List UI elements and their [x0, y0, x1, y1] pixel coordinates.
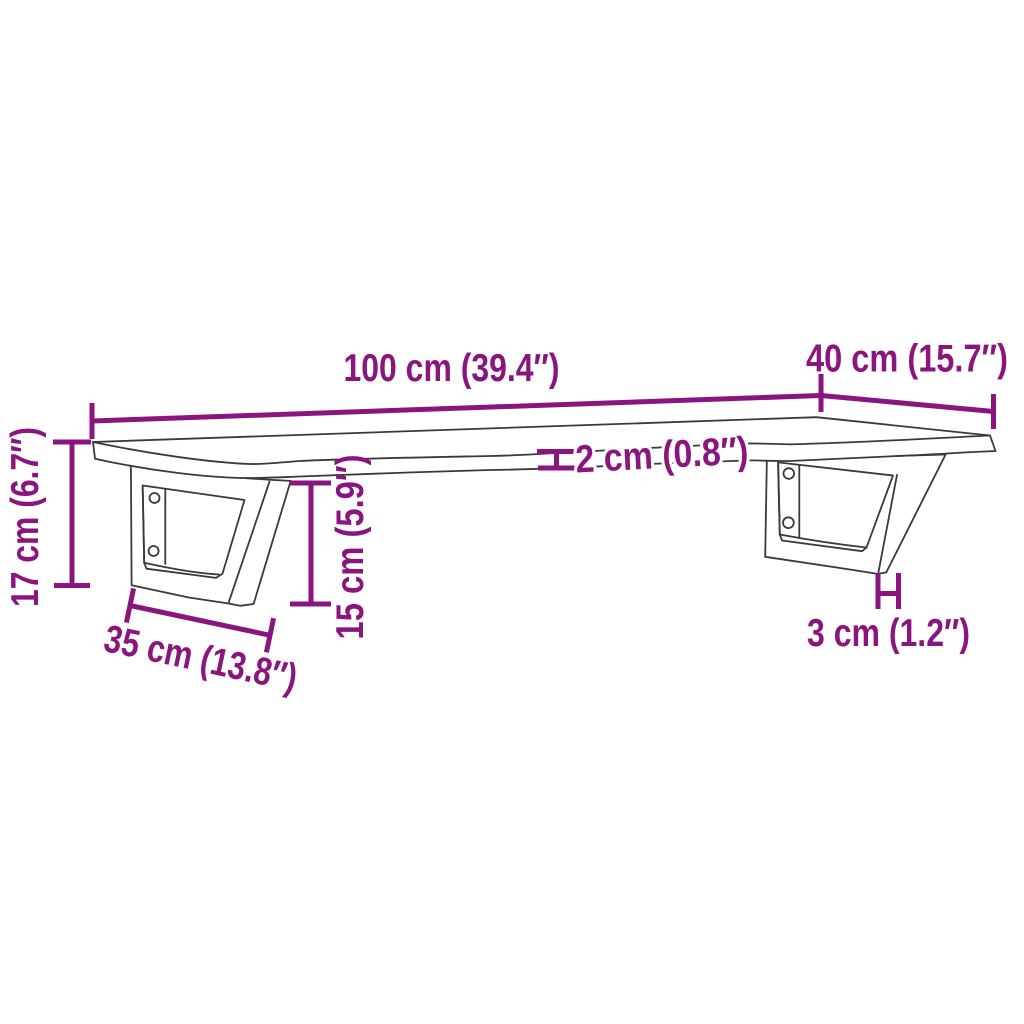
svg-text:15 cm (5.9″): 15 cm (5.9″) [329, 455, 372, 640]
svg-text:100 cm (39.4″): 100 cm (39.4″) [344, 347, 560, 390]
svg-text:3 cm (1.2″): 3 cm (1.2″) [807, 612, 970, 655]
svg-text:40 cm (15.7″): 40 cm (15.7″) [806, 338, 1008, 381]
svg-text:2 cm (0.8″): 2 cm (0.8″) [574, 430, 749, 482]
svg-text:17 cm (6.7″): 17 cm (6.7″) [4, 427, 47, 607]
